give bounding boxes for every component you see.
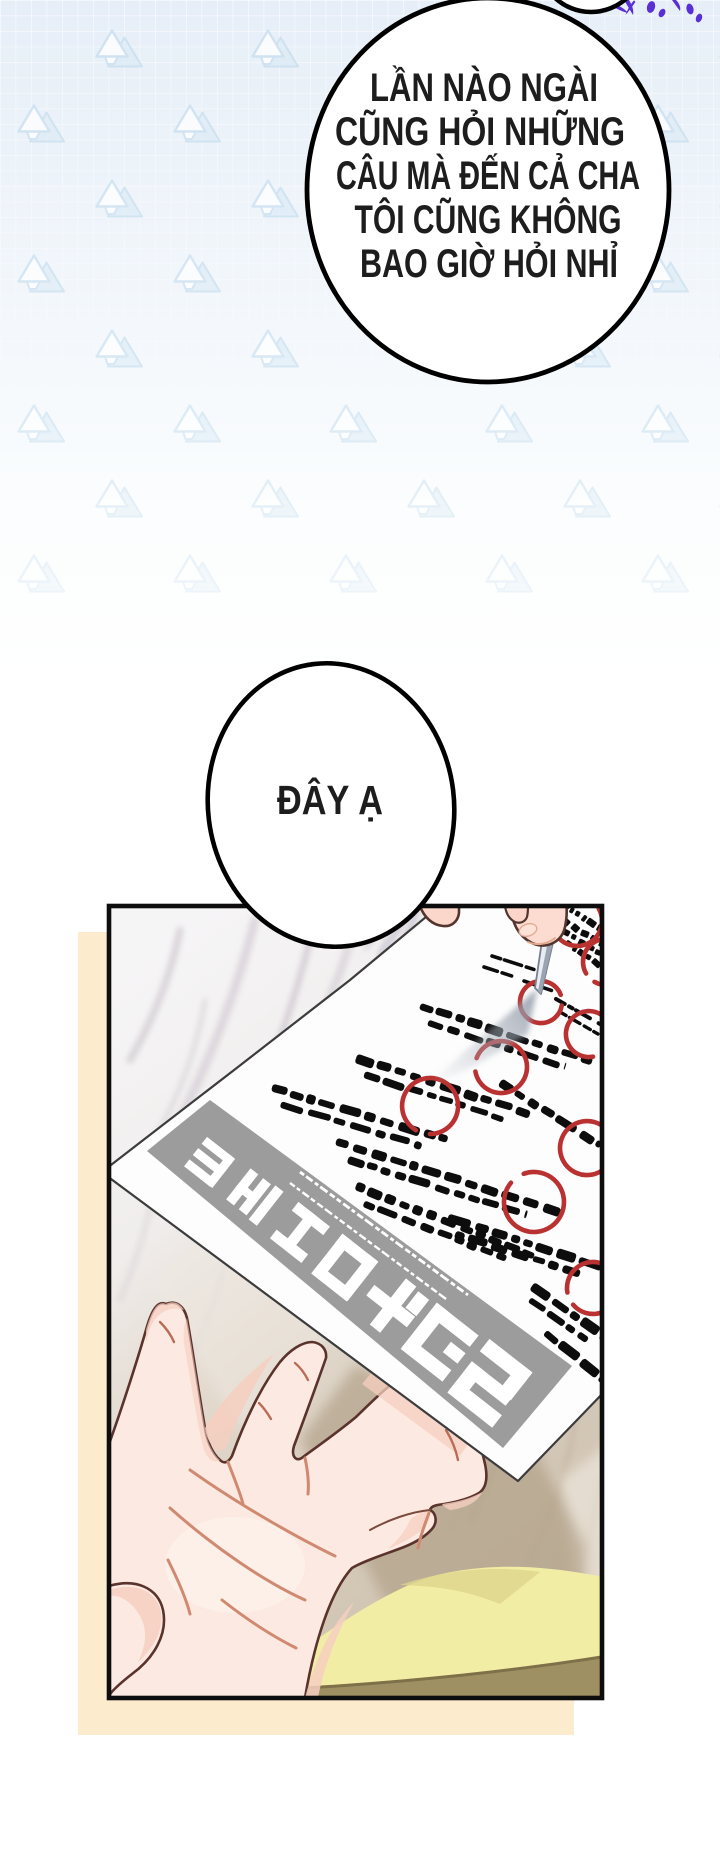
- svg-text:ĐÂY Ạ: ĐÂY Ạ: [277, 777, 383, 823]
- svg-text:TÔI CŨNG KHÔNG: TÔI CŨNG KHÔNG: [355, 196, 622, 242]
- svg-text:CÂU MÀ ĐẾN CẢ CHA: CÂU MÀ ĐẾN CẢ CHA: [336, 152, 640, 198]
- svg-text:LẦN NÀO NGÀI: LẦN NÀO NGÀI: [370, 64, 598, 110]
- svg-text:BAO GIỜ HỎI NHỈ: BAO GIỜ HỎI NHỈ: [360, 240, 618, 286]
- svg-text:CŨNG HỎI NHỮNG: CŨNG HỎI NHỮNG: [335, 108, 625, 154]
